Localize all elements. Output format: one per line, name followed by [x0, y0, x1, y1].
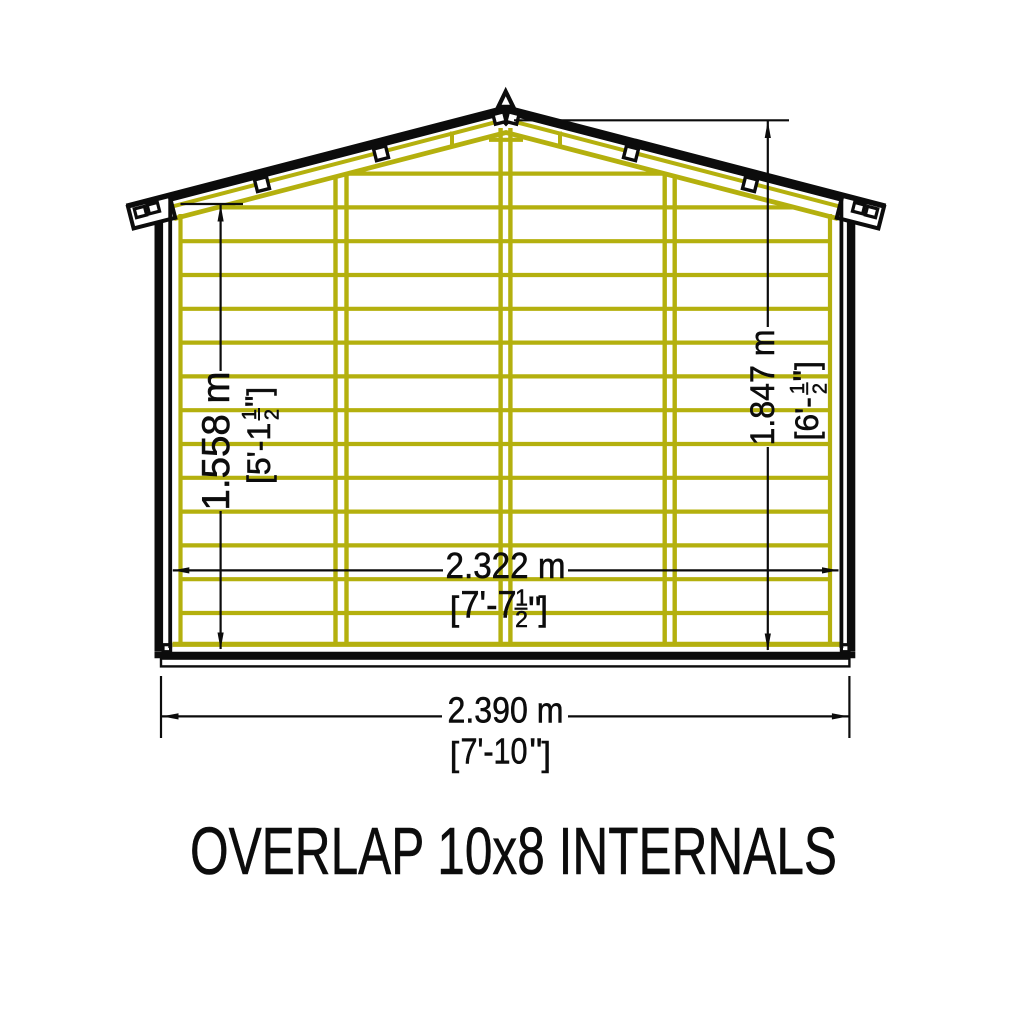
svg-text:": " [239, 396, 275, 407]
svg-text:2: 2 [515, 606, 528, 632]
svg-text:[5'-1: [5'-1 [241, 423, 277, 484]
svg-text:1: 1 [239, 409, 261, 420]
svg-text:1.558 m: 1.558 m [195, 371, 238, 510]
svg-text:[6'-: [6'- [789, 397, 825, 440]
svg-text:": " [530, 731, 543, 772]
svg-text:": " [787, 370, 823, 381]
svg-text:2: 2 [261, 409, 283, 420]
svg-text:1.847 m: 1.847 m [744, 330, 782, 446]
svg-text:]: ] [789, 361, 825, 370]
svg-text:]: ] [539, 591, 548, 629]
svg-text:OVERLAP 10x8 INTERNALS: OVERLAP 10x8 INTERNALS [190, 814, 837, 889]
svg-text:7'-7: 7'-7 [461, 585, 517, 627]
svg-text:]: ] [241, 387, 277, 396]
svg-text:[: [ [450, 736, 460, 774]
svg-text:]: ] [542, 736, 551, 774]
svg-text:[: [ [450, 591, 460, 629]
svg-text:1: 1 [787, 383, 809, 394]
svg-text:2: 2 [810, 383, 832, 394]
svg-text:2.390 m: 2.390 m [448, 690, 564, 731]
svg-text:2.322 m: 2.322 m [446, 545, 566, 586]
svg-text:7'-10: 7'-10 [461, 731, 528, 772]
